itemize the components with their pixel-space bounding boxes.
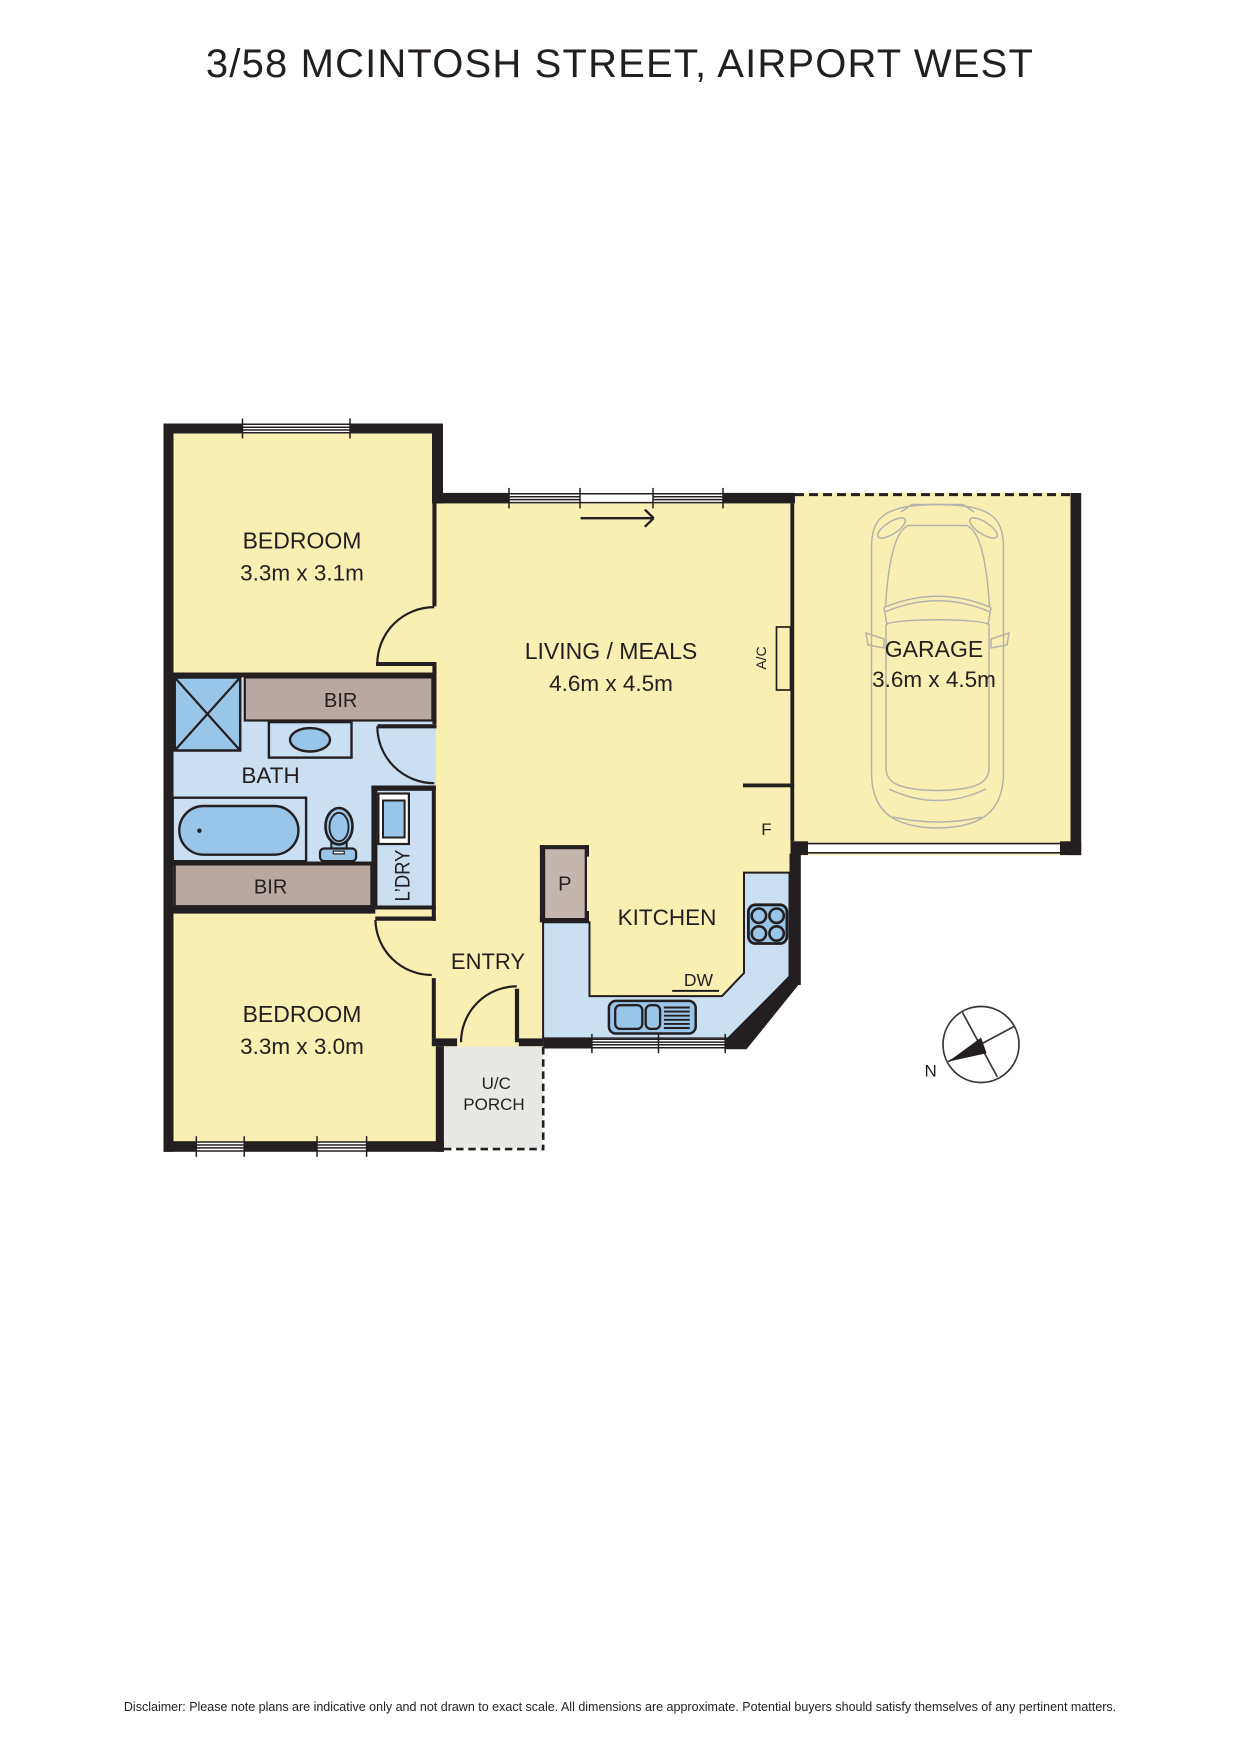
svg-text:P: P <box>558 874 571 896</box>
svg-text:LIVING / MEALS: LIVING / MEALS <box>525 638 698 664</box>
svg-text:3.3m x 3.1m: 3.3m x 3.1m <box>240 561 364 586</box>
svg-text:KITCHEN: KITCHEN <box>618 905 717 930</box>
svg-text:BIR: BIR <box>324 690 357 712</box>
svg-text:A/C: A/C <box>753 646 769 669</box>
svg-text:4.6m x 4.5m: 4.6m x 4.5m <box>549 671 673 696</box>
svg-text:BEDROOM: BEDROOM <box>243 1001 362 1027</box>
svg-text:ENTRY: ENTRY <box>451 949 525 974</box>
svg-text:BEDROOM: BEDROOM <box>243 528 362 554</box>
svg-text:U/C: U/C <box>482 1074 511 1093</box>
svg-text:PORCH: PORCH <box>463 1095 524 1114</box>
svg-text:L’DRY: L’DRY <box>392 850 415 902</box>
svg-text:GARAGE: GARAGE <box>885 636 983 662</box>
svg-text:BIR: BIR <box>254 877 287 899</box>
svg-text:3/58 MCINTOSH STREET, AIRPORT: 3/58 MCINTOSH STREET, AIRPORT WEST <box>206 42 1034 86</box>
svg-text:DW: DW <box>684 970 714 990</box>
svg-text:BATH: BATH <box>241 763 299 788</box>
svg-text:3.6m x 4.5m: 3.6m x 4.5m <box>872 667 996 692</box>
svg-text:Disclaimer: Please note plans: Disclaimer: Please note plans are indica… <box>124 1700 1116 1714</box>
svg-text:F: F <box>761 820 771 839</box>
svg-text:N: N <box>924 1062 936 1081</box>
svg-text:3.3m x 3.0m: 3.3m x 3.0m <box>240 1034 364 1059</box>
